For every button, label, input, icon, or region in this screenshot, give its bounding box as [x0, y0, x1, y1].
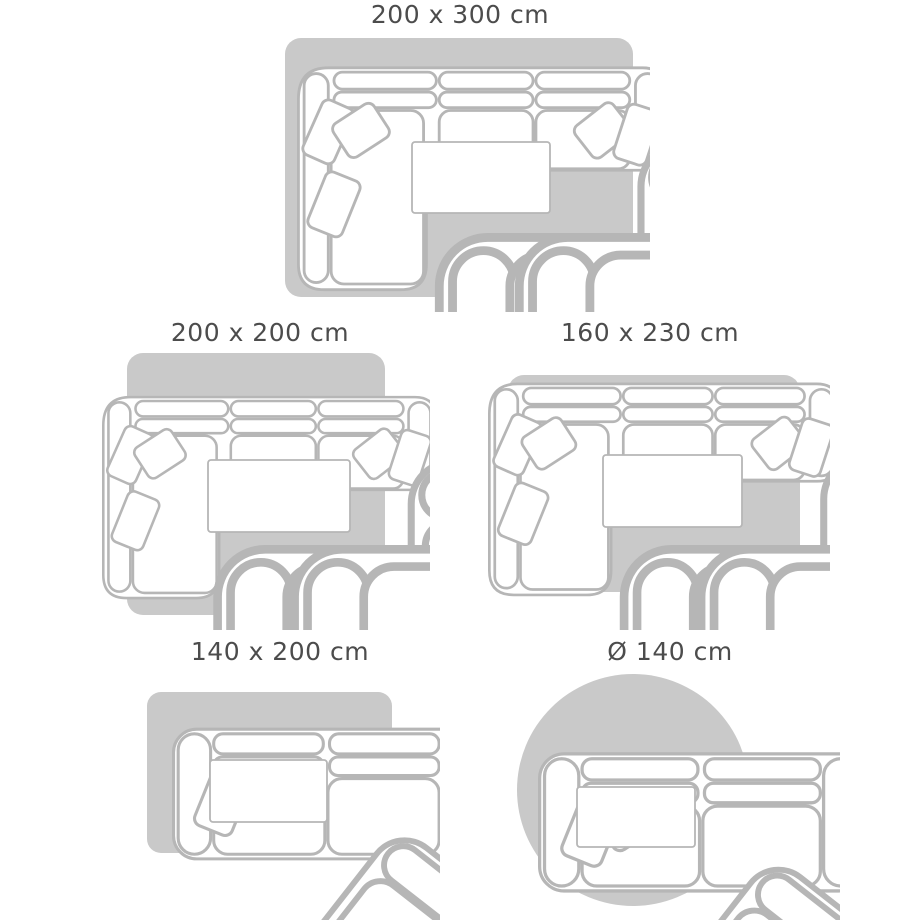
panel-160x230: 160 x 230 cm: [470, 318, 830, 630]
size-label-140x200: 140 x 200 cm: [120, 637, 440, 667]
size-label-200x300: 200 x 300 cm: [270, 0, 650, 30]
layout-scene-140x200: [120, 665, 440, 920]
club-chair: [701, 549, 830, 630]
club-chair: [295, 549, 430, 630]
coffee-table: [577, 787, 695, 847]
layout-scene-round-140: [500, 665, 840, 920]
rug-size-guide: 200 x 300 cm 200 x 200 cm 160 x 230 cm: [0, 0, 920, 920]
size-label-200x200: 200 x 200 cm: [90, 318, 430, 348]
layout-scene-200x200: [90, 348, 430, 630]
size-label-160x230: 160 x 230 cm: [470, 318, 830, 348]
coffee-table: [412, 142, 550, 213]
panel-140x200: 140 x 200 cm: [120, 637, 440, 920]
size-label-round-140: Ø 140 cm: [500, 637, 840, 667]
layout-scene-160x230: [470, 348, 830, 630]
panel-200x300: 200 x 300 cm: [270, 0, 650, 315]
layout-scene-200x300: [270, 30, 650, 312]
coffee-table: [603, 455, 742, 527]
coffee-table: [210, 760, 327, 822]
club-chair: [519, 237, 650, 312]
panel-200x200: 200 x 200 cm: [90, 318, 430, 630]
panel-round-140: Ø 140 cm: [500, 637, 840, 920]
coffee-table: [208, 460, 350, 532]
